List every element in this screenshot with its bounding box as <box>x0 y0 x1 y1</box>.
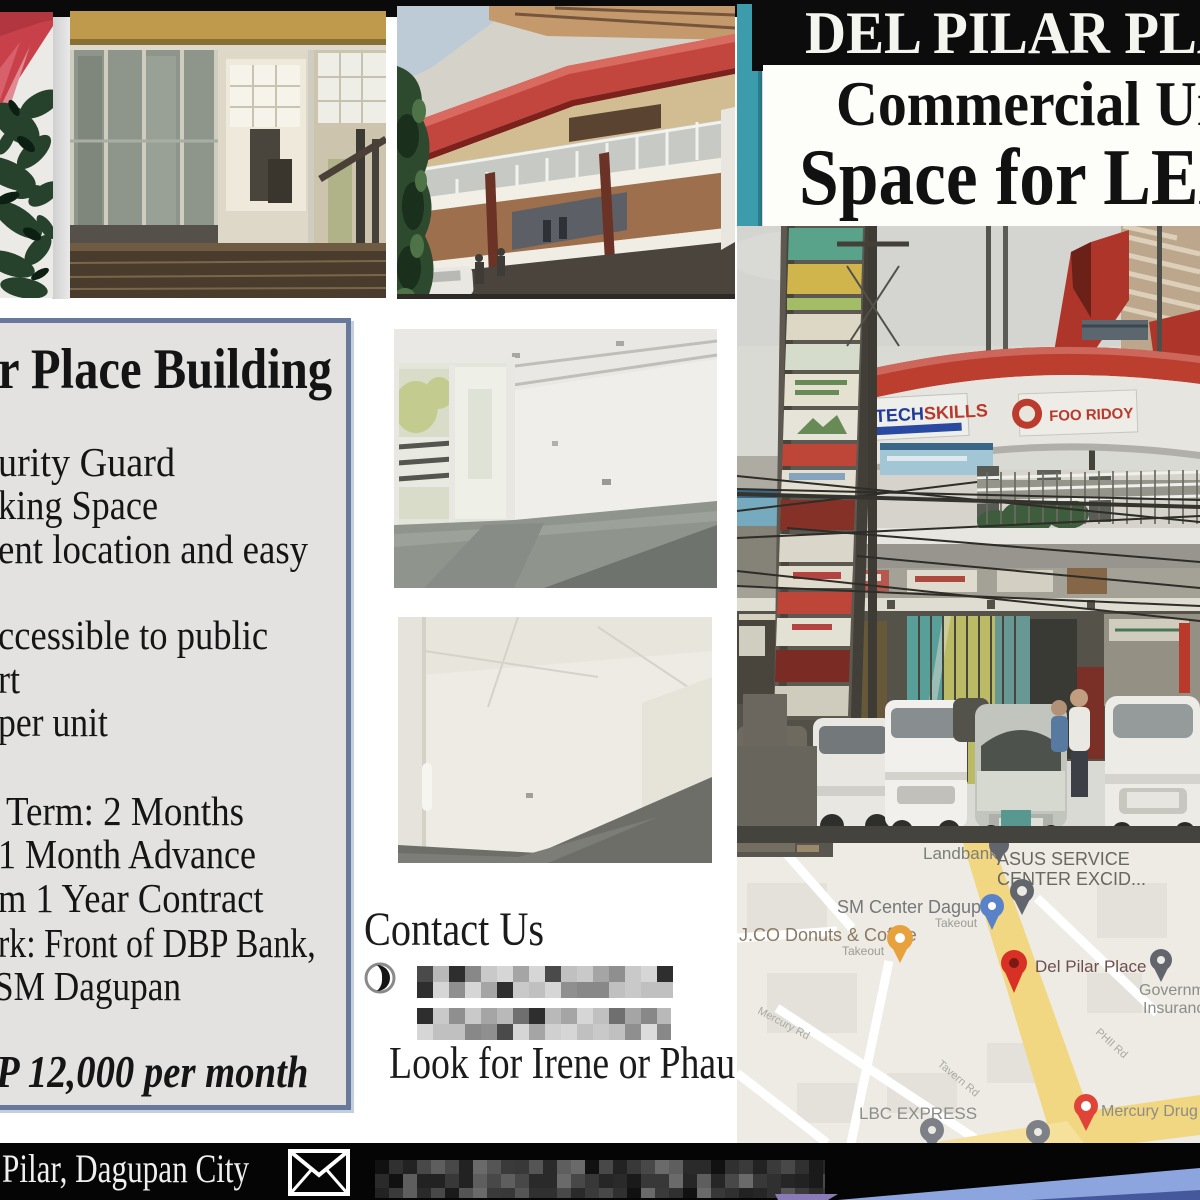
svg-text:Del Pilar Place: Del Pilar Place <box>1035 957 1147 976</box>
svg-text:Governm: Governm <box>1139 982 1200 999</box>
svg-text:LBC EXPRESS: LBC EXPRESS <box>859 1104 977 1123</box>
svg-text:Landbank: Landbank <box>923 844 998 863</box>
svg-text:Takeout: Takeout <box>842 944 885 958</box>
svg-text:Takeout: Takeout <box>935 916 978 930</box>
svg-text:Insuranc: Insuranc <box>1143 1000 1200 1017</box>
svg-text:Mercury Drug S: Mercury Drug S <box>1101 1103 1200 1120</box>
svg-text:ASUS SERVICE: ASUS SERVICE <box>997 849 1130 869</box>
svg-text:SM Center Dagupan: SM Center Dagupan <box>837 897 1001 917</box>
